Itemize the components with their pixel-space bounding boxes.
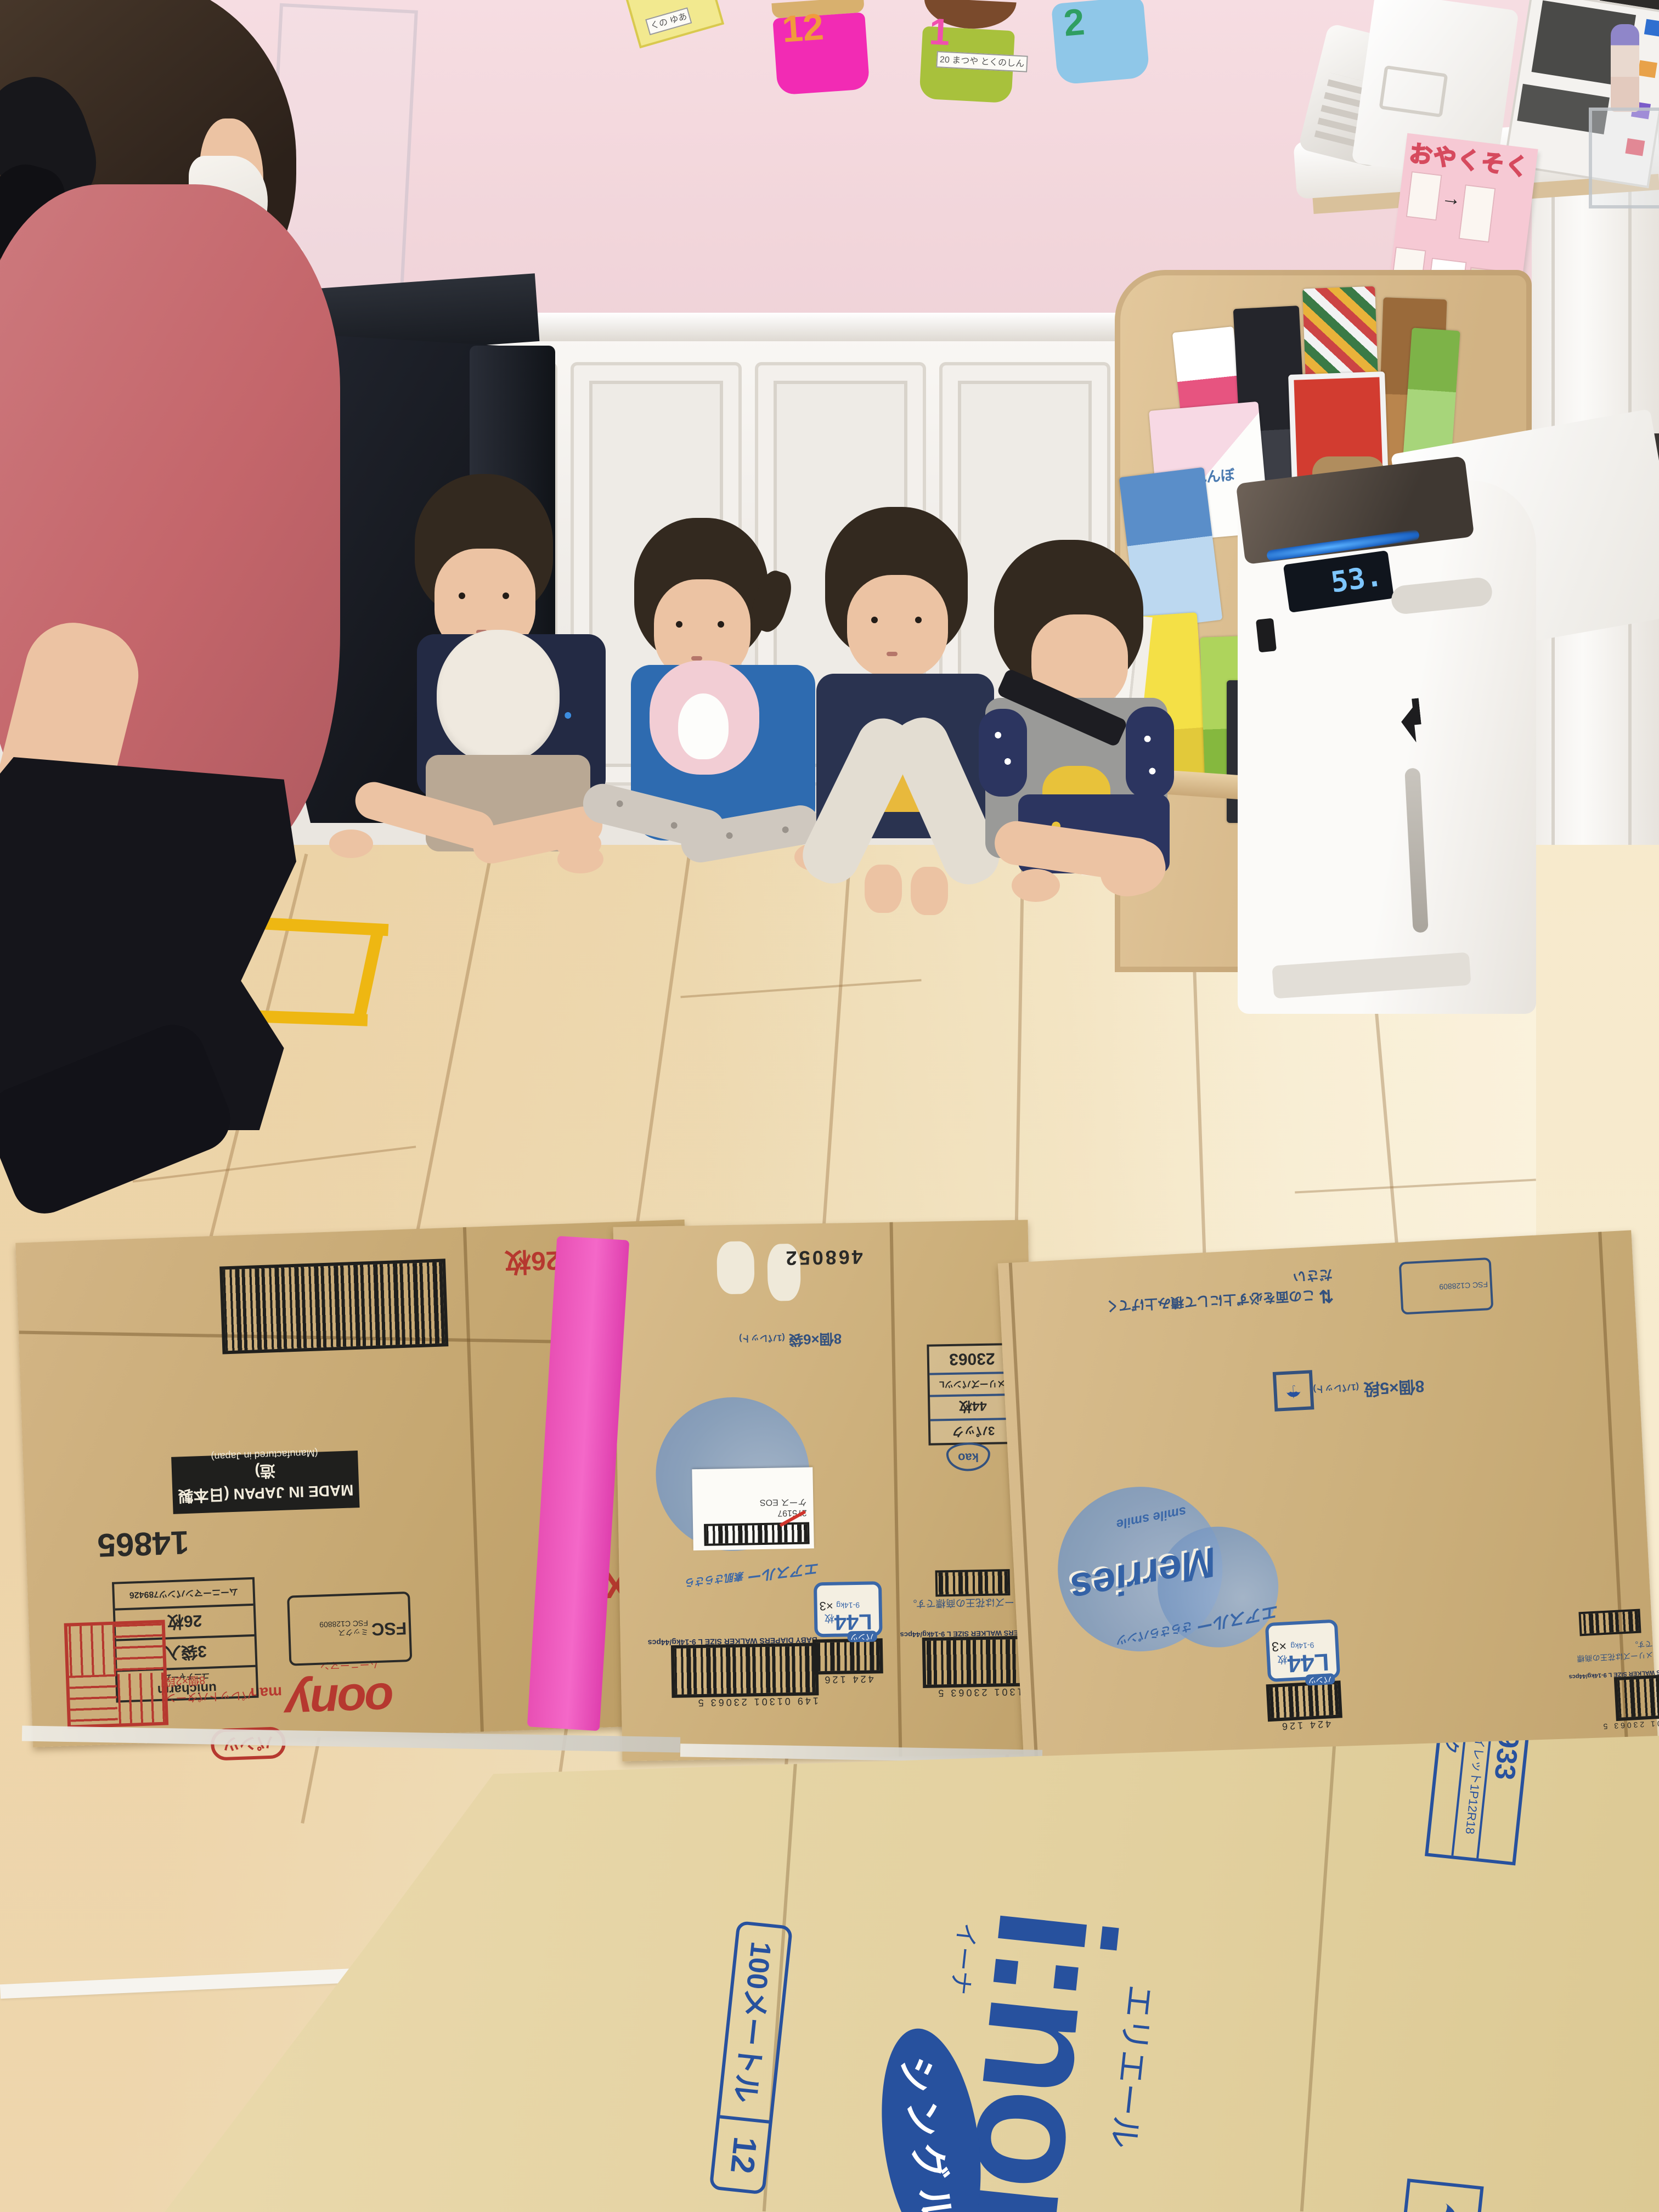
keep-up-note: ⇅ この面を必ず上にして積み上げてください <box>1102 1266 1334 1318</box>
child-1-bib <box>437 630 560 764</box>
keep-dry-umbrella-icon: ☂ <box>1273 1370 1314 1412</box>
kao-logo: kao <box>946 1442 991 1471</box>
appliance-slot <box>1379 65 1448 117</box>
inon-spec-table: 品名コード 723933 品 名 エリエールイーナ トイレット1P12R18 ケ… <box>1425 1736 1554 1865</box>
air-purifier-power-button <box>1256 618 1277 652</box>
edge-trademark: メリーズは花王の商標です。 <box>1569 1638 1654 1664</box>
merries-fsc: FSC C128809 <box>1399 1257 1494 1315</box>
moony-pallet-pattern-icon <box>64 1620 169 1728</box>
clock-tab-blue <box>1644 19 1659 37</box>
merries-right-box: 6073-1872 00:21■ Merries エアスルー さらさらパンツ s… <box>998 1230 1659 1809</box>
pink-cupcake-decoration: 12 <box>771 0 870 95</box>
merries-stack-count: 8個×6袋 (1パレット) <box>739 1329 842 1352</box>
inon-logo: エリエール i:non イーナ シングル <box>739 1883 1153 2212</box>
air-through-script: エアスルー 素肌さらさら <box>684 1559 820 1596</box>
poster-arrow-icon: → <box>1440 186 1463 211</box>
clock-tab-orange <box>1638 60 1657 78</box>
shipping-label: 275197 ケース EOS <box>692 1467 814 1550</box>
merries-barcode-block: 149 01301 23063 5 BABY DIAPERS WALKER SI… <box>648 1635 819 1709</box>
pink-cupcake-number: 12 <box>781 7 825 52</box>
moony-item-number: 14865 <box>97 1522 189 1563</box>
handling-icons-row: ☂ ◎ <box>1378 2179 1484 2212</box>
blue-cupcake-number: 2 <box>1062 2 1086 46</box>
merries-right-badge: 424 126 L44枚 ×3 パンツ 9-14kg <box>1263 1619 1343 1733</box>
yellow-card-label: くの ゆあ <box>645 7 692 35</box>
merries-right-print: 6073-1872 00:21■ Merries エアスルー さらさらパンツ s… <box>998 1230 1659 1809</box>
merries-center-print: 468052 149 01301 23063 5 BABY DIAPERS WA… <box>613 1220 1037 1761</box>
keep-dry-umbrella-icon: ☂ <box>1400 2179 1484 2212</box>
miffy-face-icon <box>678 693 729 759</box>
moony-pallet-text: パレットパターン 8個×2段 <box>165 1672 253 1708</box>
merries-right-stack: 8個×5段 (1パレット) <box>1313 1375 1425 1404</box>
child-2-bib <box>650 661 759 775</box>
child-4-polka-sleeve <box>1126 707 1174 799</box>
poster-picture-cell <box>1406 171 1442 221</box>
humidity-value: 53. <box>1329 560 1384 600</box>
inon-print-rotated: 品名コード 723933 品 名 エリエールイーナ トイレット1P12R18 ケ… <box>666 1736 1562 2212</box>
edge-barcode-block: 149 01301 23063 5 BABY DIAPERS WALKER SI… <box>1568 1666 1659 1731</box>
nursery-room-photo: おやくそく → × くの ゆあ 12 1 20 まつや とくのしん 2 <box>0 0 1659 2212</box>
merries-badge: 424 126 L44枚 ×3 パンツ 9-14kg <box>811 1581 883 1685</box>
moony-made-in-japan: MADE IN JAPAN (日本製造) (Manufactured in Ja… <box>171 1451 359 1514</box>
green-cupcake-decoration: 1 20 まつや とくのしん <box>919 0 1016 103</box>
clear-acrylic-box <box>1589 108 1659 208</box>
merries-center-box: 468052 149 01301 23063 5 BABY DIAPERS WA… <box>613 1220 1037 1761</box>
moony-fsc-label: FSC ミックス FSC C128809 <box>287 1592 412 1666</box>
small-figurine <box>1611 24 1639 112</box>
green-cupcake-number: 1 <box>928 11 951 55</box>
case-print-number: 468052 <box>783 1245 863 1269</box>
child-4-polka-sleeve <box>979 709 1027 797</box>
small-barcode <box>935 1569 1011 1596</box>
edge-small-barcode <box>1578 1609 1641 1637</box>
moony-barcode <box>219 1259 448 1354</box>
poster-picture-cell <box>1459 184 1496 242</box>
blue-cupcake-decoration: 2 <box>1051 0 1150 85</box>
